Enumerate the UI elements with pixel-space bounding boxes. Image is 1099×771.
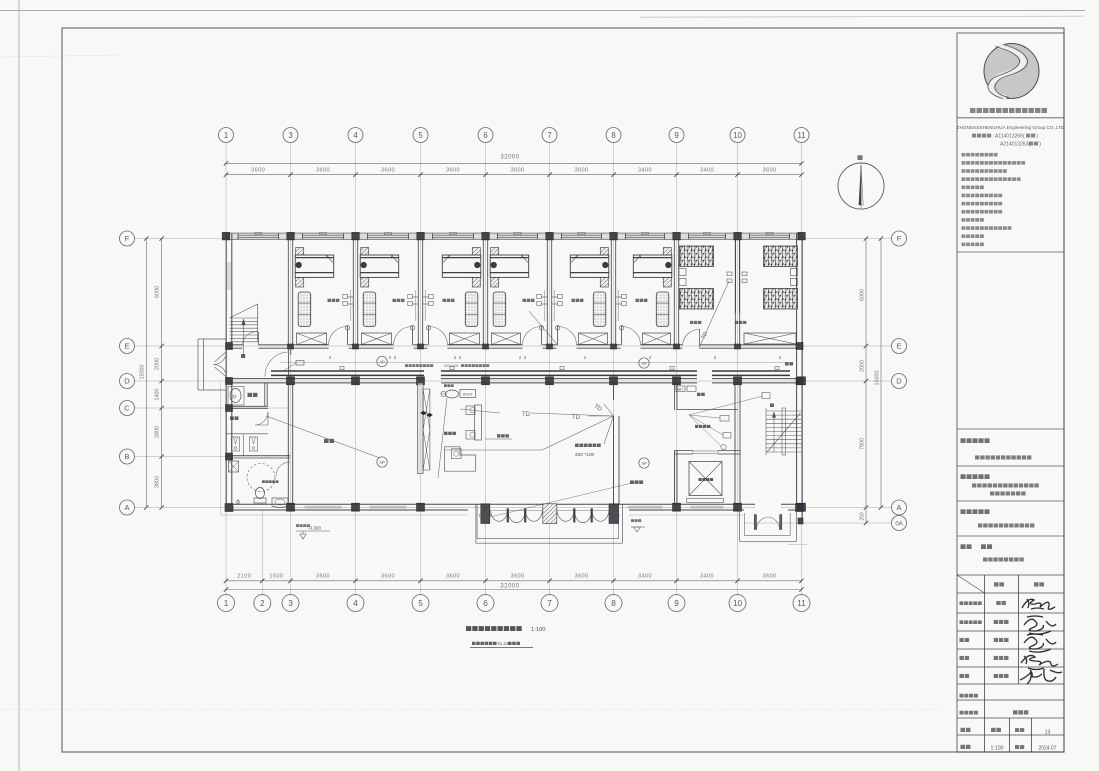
svg-text:11: 11 (797, 599, 806, 608)
svg-text:13: 13 (1045, 730, 1051, 736)
svg-text:WH: WH (677, 388, 683, 392)
svg-text:2: 2 (459, 355, 462, 360)
svg-text:2: 2 (524, 355, 527, 360)
svg-text:3600: 3600 (251, 167, 265, 173)
svg-text:32000: 32000 (500, 155, 519, 161)
svg-text:TD: TD (522, 412, 531, 418)
svg-text:4: 4 (353, 131, 358, 140)
svg-text:1: 1 (224, 131, 228, 140)
svg-text:F: F (897, 234, 902, 243)
svg-text:200X100: 200X100 (444, 364, 458, 368)
svg-text:10: 10 (733, 131, 742, 140)
svg-text:7: 7 (547, 599, 552, 608)
svg-text:3600: 3600 (381, 574, 395, 580)
svg-text:10: 10 (733, 599, 743, 608)
svg-text:3600: 3600 (316, 574, 330, 580)
svg-text:2: 2 (649, 355, 652, 360)
svg-text:6000: 6000 (155, 286, 161, 298)
svg-text:0A: 0A (895, 522, 902, 528)
svg-text:3600: 3600 (446, 167, 460, 173)
svg-text:B: B (124, 452, 129, 461)
svg-text:1:100: 1:100 (991, 746, 1004, 752)
svg-text:3: 3 (288, 131, 292, 140)
svg-text:2: 2 (394, 355, 397, 360)
svg-text:3600: 3600 (446, 574, 460, 580)
svg-text:4: 4 (353, 599, 358, 608)
svg-text:D: D (124, 377, 130, 386)
svg-text:91.34: 91.34 (498, 641, 509, 646)
svg-text:: A114013266(: : A114013266( (993, 134, 1025, 140)
svg-text:TD: TD (572, 415, 581, 421)
svg-text:E: E (124, 342, 129, 351)
svg-text:3400: 3400 (700, 167, 714, 173)
svg-text:AP: AP (379, 460, 385, 465)
svg-text:3600: 3600 (574, 574, 588, 580)
svg-text:2100: 2100 (237, 574, 251, 580)
svg-text:E: E (896, 342, 901, 351)
svg-text:2000: 2000 (155, 358, 161, 370)
svg-text:A: A (896, 503, 901, 512)
svg-text:6: 6 (483, 131, 487, 140)
svg-text:AP: AP (641, 361, 647, 366)
svg-text:1: 1 (224, 599, 229, 608)
svg-text:3600: 3600 (762, 574, 776, 580)
svg-text:2: 2 (519, 355, 522, 360)
svg-text:3600: 3600 (510, 167, 524, 173)
svg-text:250: 250 (860, 512, 866, 521)
svg-text:6000: 6000 (860, 289, 866, 301)
svg-text:C: C (124, 404, 130, 413)
svg-text:3400: 3400 (638, 167, 652, 173)
svg-text:2: 2 (714, 355, 717, 360)
svg-text:F: F (125, 234, 130, 243)
svg-text:1500: 1500 (269, 574, 283, 580)
svg-text:AP: AP (379, 360, 385, 365)
svg-text:2800: 2800 (155, 426, 161, 438)
svg-text:-0.300: -0.300 (308, 526, 321, 531)
svg-text:3400: 3400 (700, 574, 714, 580)
svg-text:ZHONGKESHENGHUA Engineering Gr: ZHONGKESHENGHUA Engineering Group CO.,LT… (957, 125, 1065, 130)
svg-text:3800: 3800 (155, 476, 161, 488)
svg-text:D: D (896, 377, 902, 386)
svg-text:3600: 3600 (316, 167, 330, 173)
svg-text:1400: 1400 (155, 389, 161, 401)
svg-text:5: 5 (418, 131, 423, 140)
svg-text:3600: 3600 (510, 574, 524, 580)
svg-text:7800: 7800 (860, 438, 866, 450)
svg-text:11: 11 (797, 131, 805, 140)
svg-text:3600: 3600 (574, 167, 588, 173)
svg-text:6: 6 (483, 599, 488, 608)
svg-text:2: 2 (260, 599, 265, 608)
svg-text:8: 8 (611, 599, 616, 608)
svg-text:32000: 32000 (500, 583, 519, 589)
svg-text:HOST: HOST (463, 393, 474, 397)
svg-text:5: 5 (418, 599, 423, 608)
svg-text:3400: 3400 (638, 574, 652, 580)
svg-text:2: 2 (454, 355, 457, 360)
svg-text:2024.07: 2024.07 (1038, 746, 1056, 752)
svg-text:2: 2 (389, 355, 392, 360)
svg-text:7: 7 (547, 131, 551, 140)
svg-text:9: 9 (674, 599, 679, 608)
svg-text:15000: 15000 (140, 365, 146, 380)
svg-text:8: 8 (611, 131, 615, 140)
svg-text:2: 2 (779, 355, 782, 360)
svg-text:3600: 3600 (762, 167, 776, 173)
svg-text:15000: 15000 (875, 371, 881, 386)
svg-text:2000: 2000 (860, 360, 866, 372)
svg-text:A214013263(: A214013263( (1000, 142, 1030, 148)
svg-text:200 *100: 200 *100 (575, 452, 595, 458)
svg-text:3600: 3600 (381, 167, 395, 173)
svg-text:A: A (124, 503, 129, 512)
svg-text:2: 2 (329, 355, 332, 360)
svg-text:2: 2 (584, 355, 587, 360)
svg-text:3: 3 (288, 599, 293, 608)
svg-text:1:100: 1:100 (531, 627, 546, 633)
svg-text:AP: AP (641, 461, 647, 466)
svg-text:9: 9 (674, 131, 678, 140)
